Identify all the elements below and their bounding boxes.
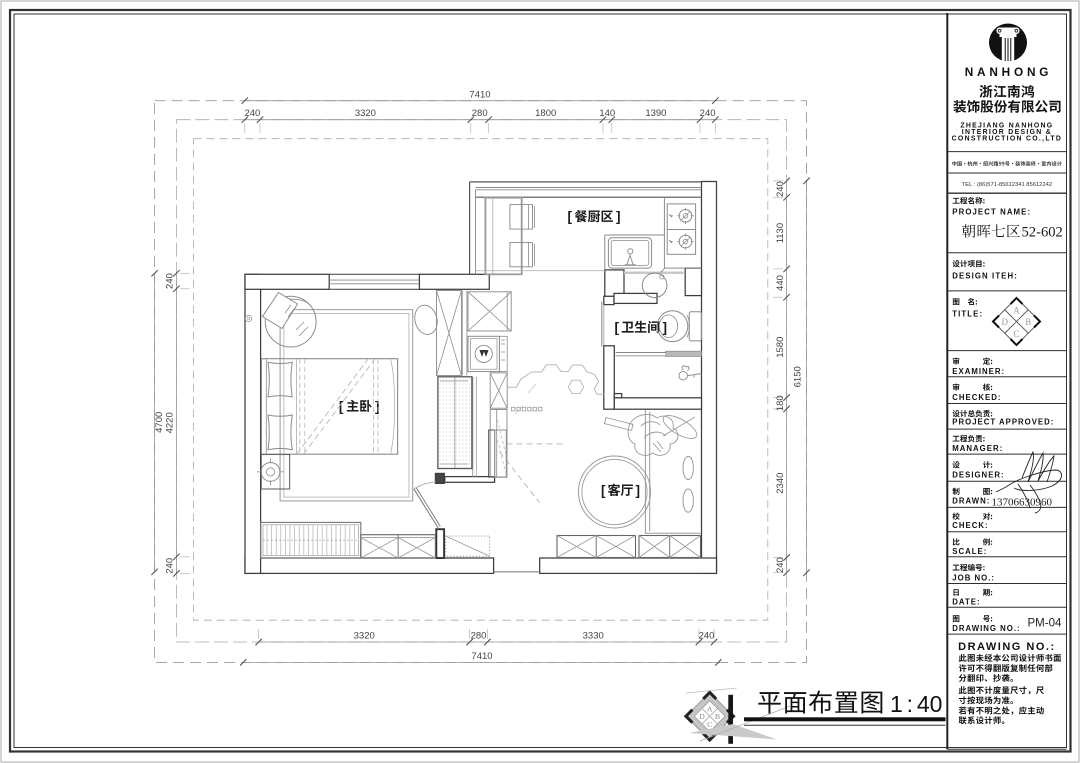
svg-text:4220: 4220 — [165, 412, 176, 433]
svg-text:TEL : (86)571-85612341 8561: TEL : (86)571-85612341 85612242 — [962, 182, 1052, 188]
svg-text:3320: 3320 — [355, 108, 376, 119]
svg-text:C: C — [1013, 329, 1019, 339]
svg-text:]: ] — [636, 483, 641, 498]
svg-text:B: B — [1025, 317, 1031, 327]
svg-text:D: D — [699, 712, 705, 721]
svg-text:DRAWING NO.:: DRAWING NO.: — [952, 624, 1020, 633]
svg-text:240: 240 — [775, 557, 786, 573]
svg-text:PM-04: PM-04 — [1028, 618, 1062, 630]
svg-text:52-602: 52-602 — [1022, 225, 1063, 241]
svg-text:PROJECT NAME:: PROJECT NAME: — [952, 208, 1031, 217]
svg-text:7410: 7410 — [469, 89, 490, 100]
svg-text:280: 280 — [472, 108, 488, 119]
svg-text:CHECKED:: CHECKED: — [952, 393, 1001, 402]
svg-text:3320: 3320 — [354, 631, 375, 642]
svg-text:3330: 3330 — [583, 631, 604, 642]
svg-text:1800: 1800 — [535, 108, 556, 119]
svg-text:1390: 1390 — [645, 108, 666, 119]
svg-text:240: 240 — [165, 273, 176, 289]
svg-text:7410: 7410 — [471, 651, 492, 662]
svg-text:13706630960: 13706630960 — [992, 497, 1053, 509]
svg-text:180: 180 — [775, 395, 786, 411]
svg-text:EXAMINER:: EXAMINER: — [952, 367, 1005, 376]
svg-text:TITLE:: TITLE: — [952, 310, 983, 319]
svg-text:240: 240 — [165, 558, 176, 574]
svg-text:240: 240 — [775, 181, 786, 197]
svg-text:2340: 2340 — [775, 473, 786, 494]
svg-text:]: ] — [616, 209, 621, 224]
svg-text:1 : 40: 1 : 40 — [890, 691, 942, 717]
svg-text:]: ] — [375, 399, 380, 414]
svg-text:A: A — [1013, 305, 1020, 315]
svg-text:140: 140 — [599, 108, 615, 119]
svg-text:MANAGER:: MANAGER: — [952, 444, 1003, 453]
svg-text:A: A — [707, 704, 713, 713]
svg-text:C: C — [707, 720, 712, 729]
svg-text:280: 280 — [471, 631, 487, 642]
svg-text:PROJECT APPROVED:: PROJECT APPROVED: — [952, 417, 1054, 426]
svg-text:B: B — [715, 712, 720, 721]
svg-text:440: 440 — [775, 275, 786, 291]
svg-text:1580: 1580 — [775, 337, 786, 358]
svg-text:240: 240 — [699, 631, 715, 642]
svg-text:[: [ — [568, 209, 573, 224]
svg-text:DESIGN ITEH:: DESIGN ITEH: — [952, 272, 1018, 281]
svg-text:240: 240 — [244, 108, 260, 119]
svg-text:D: D — [1002, 317, 1009, 327]
svg-text:DRAWN:: DRAWN: — [952, 497, 990, 506]
svg-text:DATE:: DATE: — [952, 598, 980, 607]
svg-text:CONSTRUCTION CO.,LTD: CONSTRUCTION CO.,LTD — [952, 136, 1062, 143]
svg-text:JOB NO.:: JOB NO.: — [952, 574, 995, 583]
svg-text:240: 240 — [700, 108, 716, 119]
svg-text:[: [ — [615, 320, 620, 335]
svg-text:1130: 1130 — [775, 223, 786, 243]
svg-text:DESIGNER:: DESIGNER: — [952, 471, 1004, 480]
svg-text:6150: 6150 — [793, 366, 804, 387]
svg-text:[: [ — [601, 483, 606, 498]
svg-text:4700: 4700 — [154, 412, 165, 433]
svg-text:NANHONG: NANHONG — [965, 65, 1053, 79]
svg-text:DRAWING NO.:: DRAWING NO.: — [958, 641, 1055, 653]
svg-text:CHECK:: CHECK: — [952, 521, 988, 530]
svg-text:]: ] — [663, 320, 668, 335]
svg-text:SCALE:: SCALE: — [952, 547, 987, 556]
